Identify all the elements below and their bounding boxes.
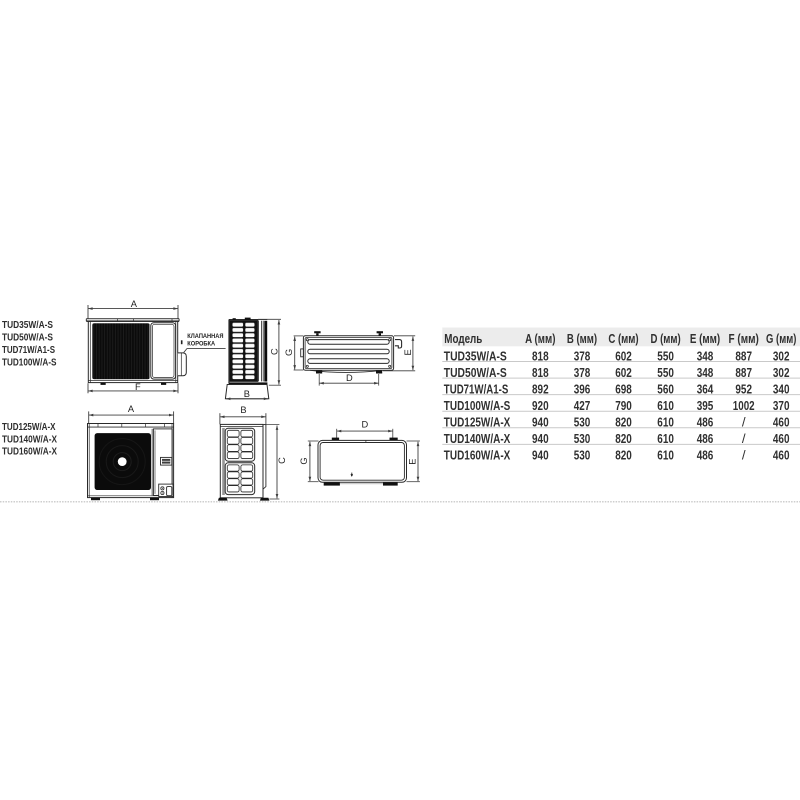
svg-text:G (мм): G (мм) (766, 331, 796, 346)
svg-text:940: 940 (532, 431, 549, 446)
svg-text:Модель: Модель (444, 331, 482, 346)
svg-text:340: 340 (773, 381, 790, 396)
svg-text:892: 892 (532, 381, 549, 396)
svg-text:818: 818 (532, 348, 549, 363)
svg-text:530: 530 (574, 431, 591, 446)
svg-text:D (мм): D (мм) (650, 331, 680, 346)
svg-text:460: 460 (773, 415, 790, 430)
svg-text:E: E (408, 459, 418, 465)
svg-text:TUD125W/A-X: TUD125W/A-X (2, 422, 56, 433)
svg-text:790: 790 (615, 398, 632, 413)
svg-text:B: B (240, 405, 246, 415)
svg-text:530: 530 (574, 415, 591, 430)
svg-text:550: 550 (657, 348, 674, 363)
svg-text:887: 887 (735, 365, 752, 380)
svg-text:940: 940 (532, 415, 549, 430)
svg-text:560: 560 (657, 381, 674, 396)
svg-text:550: 550 (657, 365, 674, 380)
svg-text:427: 427 (574, 398, 591, 413)
svg-text:TUD71W/A1-S: TUD71W/A1-S (444, 381, 509, 396)
svg-text:F (мм): F (мм) (729, 331, 759, 346)
svg-text:818: 818 (532, 365, 549, 380)
svg-text:698: 698 (615, 381, 632, 396)
svg-text:396: 396 (574, 381, 591, 396)
svg-text:TUD160W/A-X: TUD160W/A-X (444, 448, 511, 463)
svg-text:G: G (299, 457, 309, 464)
svg-text:C: C (270, 348, 280, 355)
svg-text:TUD35W/A-S: TUD35W/A-S (444, 348, 507, 363)
svg-text:952: 952 (735, 381, 752, 396)
svg-text:486: 486 (697, 431, 714, 446)
svg-text:610: 610 (657, 415, 674, 430)
svg-text:1002: 1002 (733, 398, 755, 413)
svg-text:КОРОБКА: КОРОБКА (187, 341, 215, 348)
svg-text:820: 820 (615, 415, 632, 430)
svg-text:TUD125W/A-X: TUD125W/A-X (444, 415, 511, 430)
svg-text:A: A (128, 404, 135, 414)
svg-text:940: 940 (532, 448, 549, 463)
svg-text:TUD35W/A-S: TUD35W/A-S (2, 320, 53, 331)
svg-text:E: E (403, 349, 413, 355)
svg-text:TUD71W/A1-S: TUD71W/A1-S (2, 345, 55, 356)
svg-text:820: 820 (615, 448, 632, 463)
svg-text:TUD50W/A-S: TUD50W/A-S (444, 365, 507, 380)
svg-text:348: 348 (697, 348, 714, 363)
svg-text:370: 370 (773, 398, 790, 413)
svg-text:395: 395 (697, 398, 714, 413)
svg-text:D: D (362, 420, 369, 430)
svg-text:378: 378 (574, 348, 591, 363)
svg-text:302: 302 (773, 365, 790, 380)
svg-text:460: 460 (773, 431, 790, 446)
svg-text:/: / (742, 415, 746, 430)
svg-text:TUD160W/A-X: TUD160W/A-X (2, 447, 57, 458)
svg-text:A (мм): A (мм) (525, 331, 555, 346)
svg-text:B: B (244, 389, 250, 399)
svg-text:530: 530 (574, 448, 591, 463)
svg-text:460: 460 (773, 448, 790, 463)
svg-text:TUD140W/A-X: TUD140W/A-X (444, 431, 511, 446)
svg-text:A: A (131, 299, 138, 309)
svg-text:C (мм): C (мм) (608, 331, 638, 346)
svg-text:486: 486 (697, 415, 714, 430)
svg-text:378: 378 (574, 365, 591, 380)
svg-text:610: 610 (657, 448, 674, 463)
svg-text:602: 602 (615, 365, 632, 380)
svg-text:/: / (742, 431, 746, 446)
svg-text:887: 887 (735, 348, 752, 363)
svg-text:КЛАПАННАЯ: КЛАПАННАЯ (187, 333, 223, 340)
svg-text:920: 920 (532, 398, 549, 413)
svg-text:B (мм): B (мм) (567, 331, 597, 346)
svg-text:348: 348 (697, 365, 714, 380)
svg-text:486: 486 (697, 448, 714, 463)
svg-text:G: G (284, 349, 294, 356)
svg-text:820: 820 (615, 431, 632, 446)
svg-text:610: 610 (657, 398, 674, 413)
svg-text:610: 610 (657, 431, 674, 446)
svg-text:C: C (277, 457, 287, 464)
svg-text:302: 302 (773, 348, 790, 363)
svg-text:364: 364 (697, 381, 714, 396)
svg-text:E (мм): E (мм) (690, 331, 720, 346)
svg-text:TUD140W/A-X: TUD140W/A-X (2, 434, 57, 445)
svg-text:TUD100W/A-S: TUD100W/A-S (444, 398, 511, 413)
svg-text:D: D (346, 373, 353, 383)
svg-text:TUD100W/A-S: TUD100W/A-S (2, 358, 57, 369)
svg-text:/: / (742, 448, 746, 463)
svg-text:TUD50W/A-S: TUD50W/A-S (2, 333, 53, 344)
svg-text:602: 602 (615, 348, 632, 363)
